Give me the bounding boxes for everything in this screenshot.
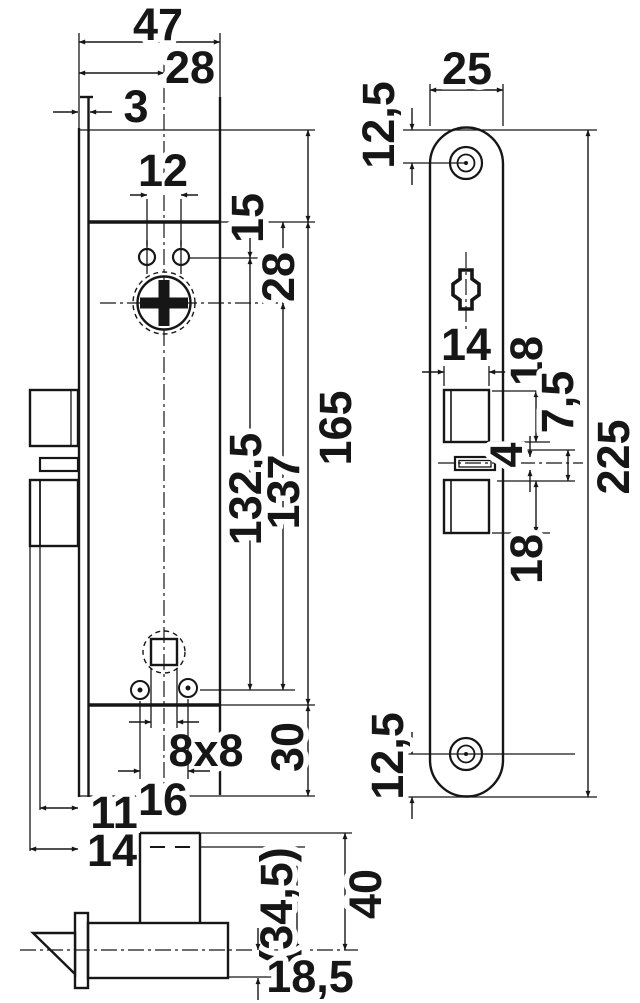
dim-bolt-cutout-height: 18	[501, 534, 552, 584]
dim-case-top-to-spindle: 28	[253, 252, 304, 302]
auxiliary-bolt	[40, 458, 78, 471]
dim-spindle-to-case-bottom: 137	[258, 454, 309, 529]
latch-cutout	[444, 390, 489, 442]
latch-bolt	[30, 390, 78, 446]
dim-end-to-screw-bottom: 12,5	[362, 712, 413, 800]
deadbolt-cutout	[444, 480, 489, 533]
latch-bevel	[33, 933, 75, 974]
dim-holes-to-spindle: 15	[222, 193, 273, 243]
dim-plate-width: 25	[442, 43, 492, 94]
faceplate-view: 25 12,5 14 18 7,5 4	[353, 43, 639, 819]
bottom-view-dimensions: (34,5) 40 18,5	[200, 833, 391, 1002]
dim-hole-spacing: 12	[138, 145, 188, 196]
dim-latch-cutout-width: 14	[441, 319, 491, 370]
dim-plate-length: 225	[588, 419, 639, 494]
dim-fixing-spacing: 16	[138, 774, 188, 825]
bottom-view: (34,5) 40 18,5	[20, 833, 391, 1002]
dim-bolt-throw: 14	[87, 825, 137, 876]
dim-aux-offset: 7,5	[532, 371, 583, 434]
spindle-follower	[133, 272, 195, 334]
dim-faceplate-thickness: 3	[123, 81, 148, 132]
dim-end-to-screw-top: 12,5	[353, 81, 404, 169]
dim-backset: 28	[165, 42, 215, 93]
dim-follower-square: 8x8	[168, 725, 243, 776]
dim-latch-height: 18,5	[266, 951, 354, 1002]
mortise-lock-drawing: 47 28 3 12 15 28 132,5 13	[0, 0, 640, 1003]
dim-outer-width: 40	[340, 869, 391, 919]
dim-case-to-plate-end: 30	[262, 722, 313, 772]
dead-bolt	[30, 480, 78, 546]
faceplate-dimensions: 25 12,5 14 18 7,5 4	[353, 43, 639, 819]
technical-drawing: 47 28 3 12 15 28 132,5 13	[0, 0, 640, 1003]
dim-slot-height: 4	[481, 442, 532, 467]
side-view: 47 28 3 12 15 28 132,5 13	[30, 0, 361, 876]
dim-case-height: 165	[310, 390, 361, 465]
